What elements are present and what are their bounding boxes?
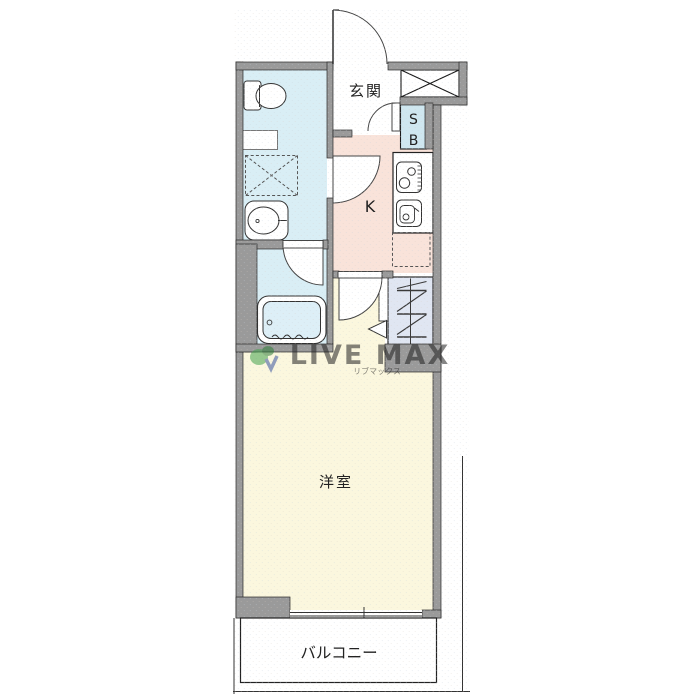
genkan-label: 玄関 xyxy=(349,82,383,100)
floorplan-canvas: 玄関 K 洋室 バルコニー S B LIVE MAX リブマックス xyxy=(0,0,700,700)
western-room-label: 洋室 xyxy=(319,473,353,491)
watermark-brand-sub: リブマックス xyxy=(353,366,401,376)
balcony-label: バルコニー xyxy=(300,644,377,662)
floorplan-drawing: 玄関 K 洋室 バルコニー S B LIVE MAX リブマックス xyxy=(0,0,700,700)
shoe-box-label-s: S xyxy=(409,112,418,128)
shoe-box-label-b: B xyxy=(409,133,419,149)
kitchen-label: K xyxy=(365,197,376,216)
